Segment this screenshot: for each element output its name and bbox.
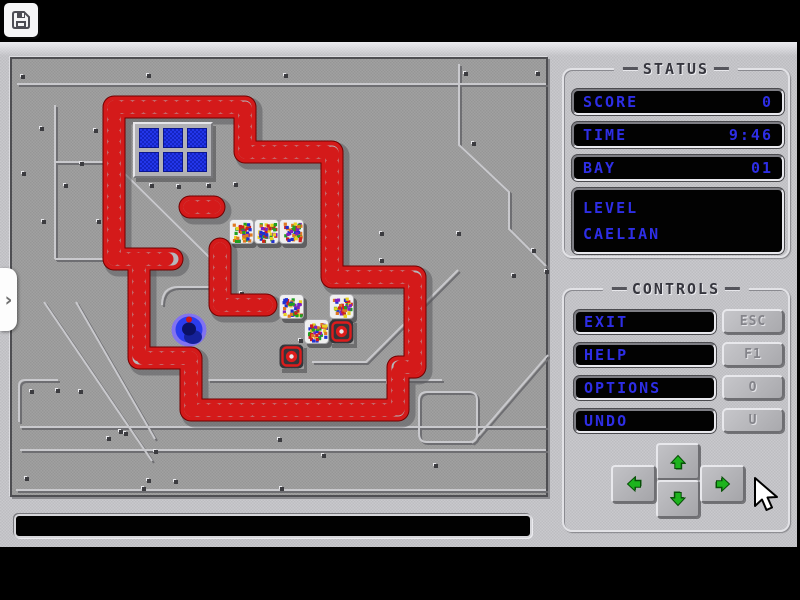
- level-label: LEVEL: [583, 199, 773, 217]
- player-character: [170, 312, 208, 353]
- left-arrow-icon: [625, 475, 643, 493]
- window-pane: [163, 128, 183, 148]
- window-tile: [133, 122, 213, 178]
- arrow-left-button[interactable]: [611, 465, 656, 503]
- key-f1-button[interactable]: F1: [722, 342, 784, 367]
- window-pane: [163, 152, 183, 172]
- save-button[interactable]: [4, 3, 38, 37]
- arrow-up-button[interactable]: [656, 443, 700, 480]
- bay-value: 01: [751, 159, 773, 177]
- score-label: SCORE: [583, 93, 638, 111]
- key-u-button[interactable]: U: [722, 408, 784, 433]
- crate-tile: [254, 219, 279, 244]
- right-arrow-icon: [714, 475, 732, 493]
- options-button[interactable]: OPTIONS: [574, 376, 716, 400]
- chevron-right-icon: ›: [5, 289, 13, 311]
- status-title-text: STATUS: [643, 60, 709, 78]
- controls-panel-title: CONTROLS: [603, 280, 749, 298]
- arrow-down-button[interactable]: [656, 480, 700, 518]
- time-label: TIME: [583, 126, 627, 144]
- window-pane: [139, 152, 159, 172]
- score-field: SCORE 0: [572, 89, 784, 115]
- window-pane: [187, 152, 207, 172]
- board-entities: [12, 59, 546, 495]
- window-pane: [187, 128, 207, 148]
- window-pane: [139, 128, 159, 148]
- crate-tile: [329, 294, 354, 319]
- crate-tile: [279, 219, 304, 244]
- level-value: CAELIAN: [583, 225, 773, 243]
- help-button[interactable]: HELP: [574, 343, 716, 367]
- arrow-right-button[interactable]: [700, 465, 745, 503]
- bay-label: BAY: [583, 159, 616, 177]
- controls-panel: CONTROLS EXIT ESC HELP F1 OPTIONS O UNDO…: [562, 288, 790, 532]
- message-bar: [14, 514, 532, 538]
- crate-tile: [279, 294, 304, 319]
- undo-button[interactable]: UNDO: [574, 409, 716, 433]
- down-arrow-icon: [669, 490, 687, 508]
- title-dash: [714, 67, 729, 70]
- score-value: 0: [762, 93, 773, 111]
- controls-title-text: CONTROLS: [632, 280, 720, 298]
- game-board: [10, 57, 548, 497]
- up-arrow-icon: [669, 453, 687, 471]
- title-dash: [725, 287, 740, 290]
- top-bar: [0, 0, 800, 42]
- bay-field: BAY 01: [572, 155, 784, 181]
- game-screen: { "toolbar": { "save_icon": "floppy-disk…: [0, 0, 800, 600]
- exit-button[interactable]: EXIT: [574, 310, 716, 334]
- floppy-disk-icon: [10, 9, 32, 31]
- time-value: 9:46: [729, 126, 773, 144]
- key-esc-button[interactable]: ESC: [722, 309, 784, 334]
- status-panel: STATUS SCORE 0 TIME 9:46 BAY 01 LEVEL CA…: [562, 68, 790, 258]
- crate-tile: [304, 319, 329, 344]
- time-field: TIME 9:46: [572, 122, 784, 148]
- key-o-button[interactable]: O: [722, 375, 784, 400]
- crate-tile: [229, 219, 254, 244]
- level-field: LEVEL CAELIAN: [572, 188, 784, 254]
- title-dash: [623, 67, 638, 70]
- status-panel-title: STATUS: [614, 60, 738, 78]
- target-tile: [279, 344, 304, 369]
- target-tile: [329, 319, 354, 344]
- title-dash: [612, 287, 627, 290]
- sidebar-expand-tab[interactable]: ›: [0, 268, 17, 331]
